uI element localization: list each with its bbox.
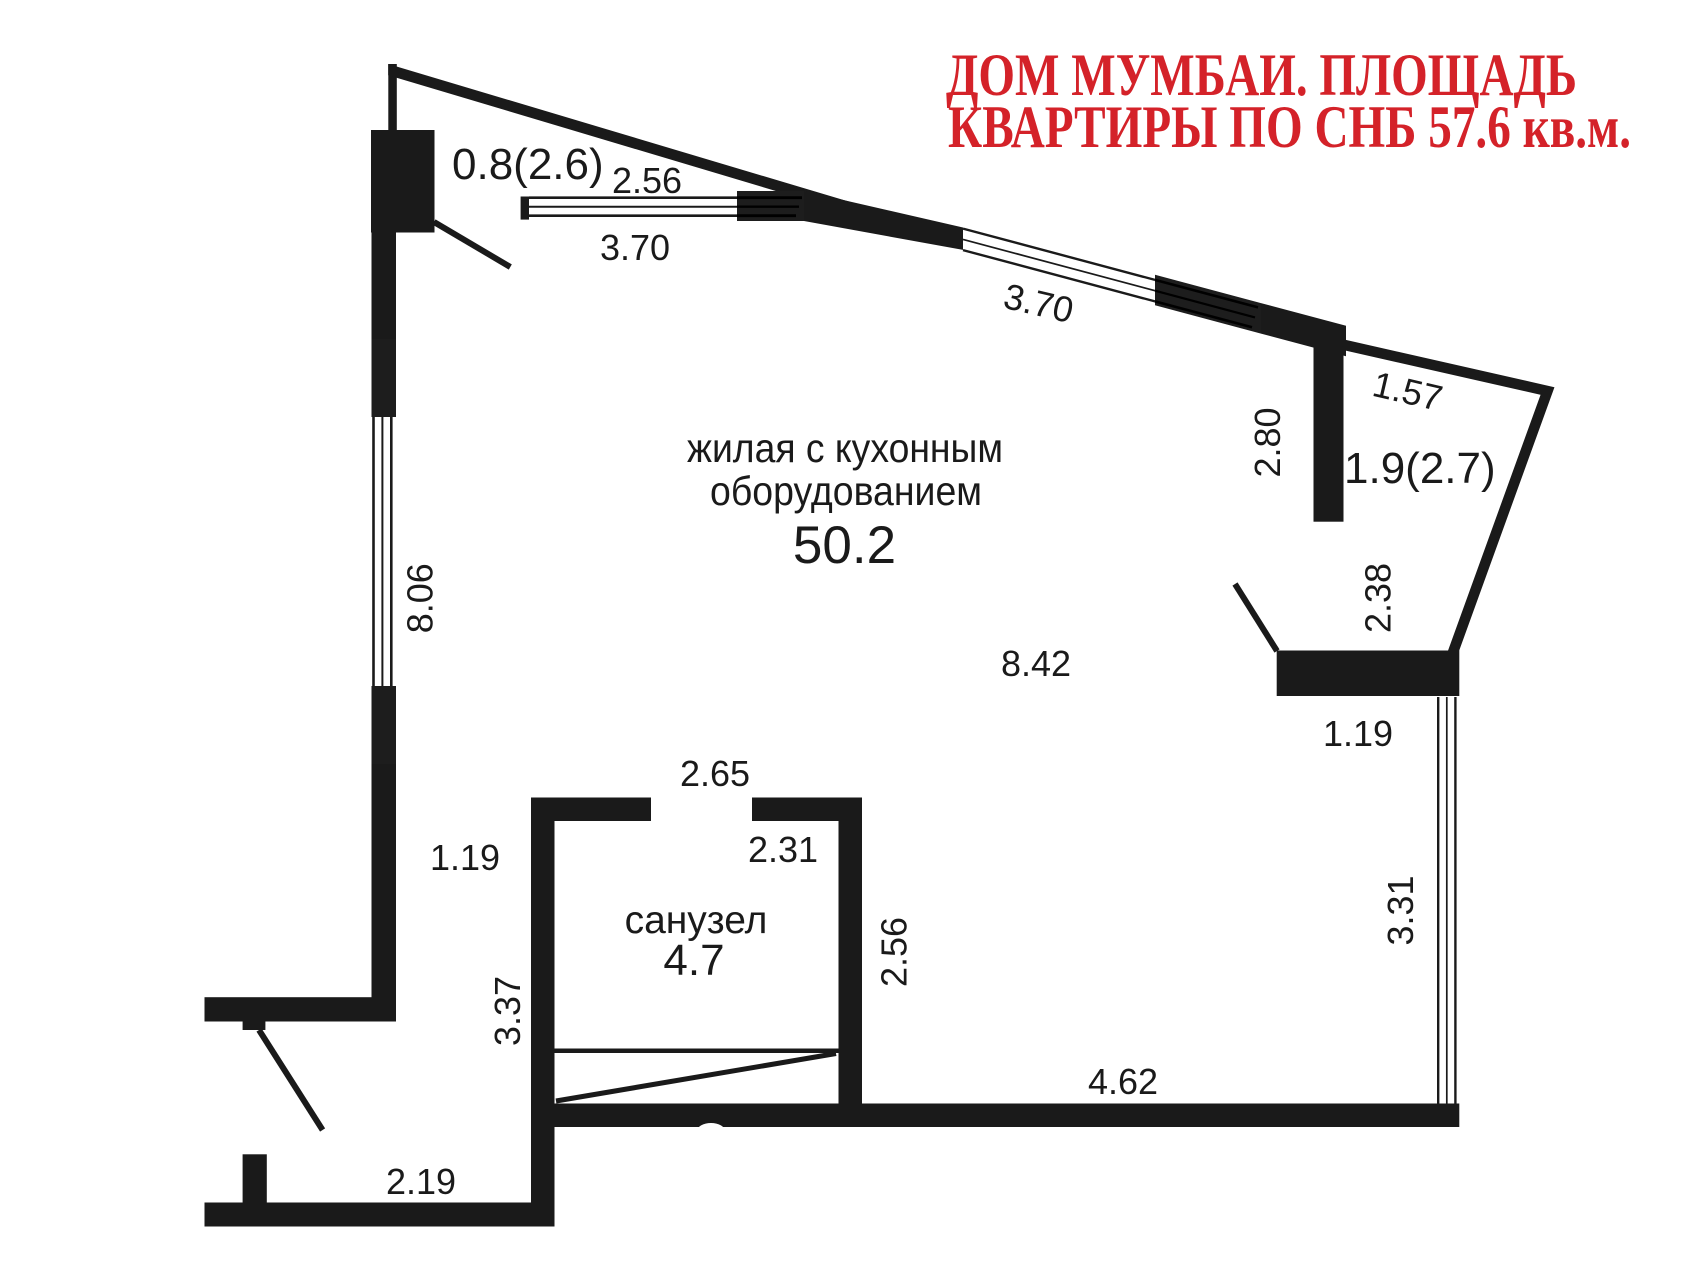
- svg-text:50.2: 50.2: [793, 516, 896, 575]
- svg-text:КВАРТИРЫ ПО СНБ 57.6 кв.м.: КВАРТИРЫ ПО СНБ 57.6 кв.м.: [948, 94, 1631, 160]
- svg-text:жилая с кухонным: жилая с кухонным: [687, 425, 1003, 471]
- svg-text:4.7: 4.7: [663, 936, 724, 985]
- svg-text:3.70: 3.70: [600, 227, 670, 268]
- svg-text:2.19: 2.19: [386, 1161, 456, 1202]
- svg-text:3.31: 3.31: [1380, 875, 1421, 945]
- svg-text:3.37: 3.37: [487, 976, 528, 1046]
- svg-text:8.06: 8.06: [400, 563, 441, 633]
- svg-text:8.42: 8.42: [1001, 643, 1071, 684]
- svg-text:1.19: 1.19: [1323, 713, 1393, 754]
- svg-text:2.31: 2.31: [748, 829, 818, 870]
- svg-text:2.56: 2.56: [874, 917, 915, 987]
- svg-text:0.8(2.6): 0.8(2.6): [452, 140, 604, 189]
- svg-text:2.56: 2.56: [612, 160, 682, 201]
- svg-text:1.19: 1.19: [430, 837, 500, 878]
- svg-text:2.38: 2.38: [1357, 563, 1398, 633]
- svg-text:1.9(2.7): 1.9(2.7): [1344, 444, 1496, 493]
- svg-text:2.65: 2.65: [680, 753, 750, 794]
- svg-text:оборудованием: оборудованием: [710, 468, 982, 514]
- svg-text:2.80: 2.80: [1247, 407, 1288, 477]
- svg-text:4.62: 4.62: [1088, 1061, 1158, 1102]
